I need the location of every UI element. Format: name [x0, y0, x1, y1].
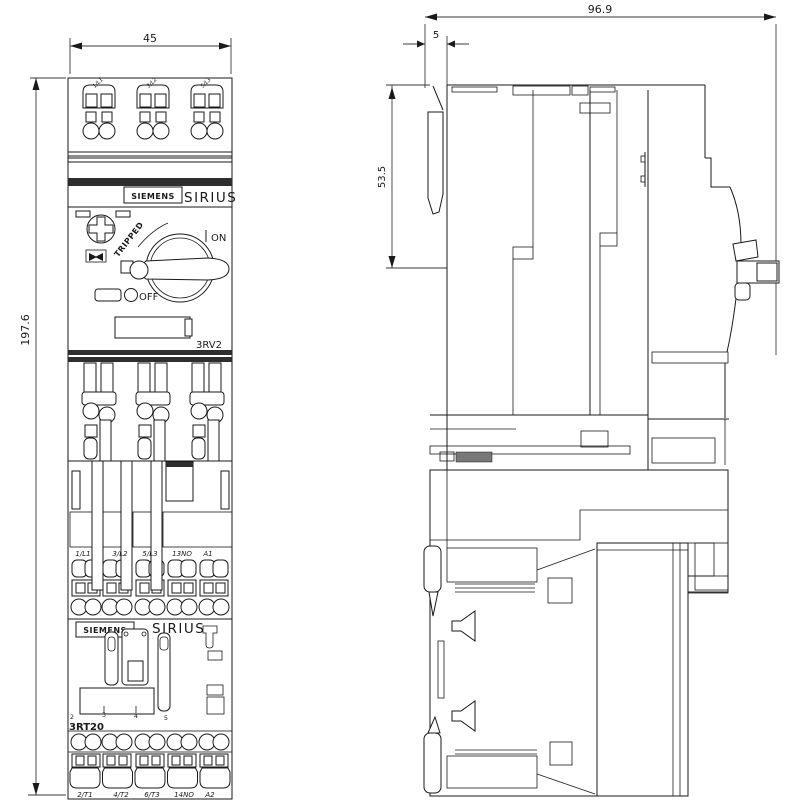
dimension-drawing-canvas: 45 197.6 1/L1 3/L2 5/L3 SIEMEN [0, 0, 800, 800]
input-terminal-label: 5/L3 [142, 550, 157, 558]
contactor-side [424, 470, 728, 796]
output-clamp [168, 768, 198, 788]
din-rail-claw-top [428, 86, 443, 214]
output-clamp [103, 768, 133, 788]
on-label: ON [211, 233, 226, 244]
front-top-terminal-block: 1/L1 3/L2 5/L3 [83, 77, 223, 139]
center-block [166, 462, 193, 501]
output-terminal-label: 14NO [174, 791, 194, 799]
scale-mark: 4 [134, 712, 138, 720]
output-clamp [70, 768, 100, 788]
input-terminal-label: 13NO [172, 550, 192, 558]
coil-body-side [597, 543, 688, 796]
contactor-label-window [80, 688, 154, 714]
breaker-label-window [115, 317, 190, 338]
input-terminal-label: 1/L1 [75, 550, 90, 558]
knob-lever-side [733, 240, 779, 300]
front-dim-height: 197.6 [19, 78, 66, 795]
input-clamp [168, 560, 196, 577]
breaker-brand: SIEMENS [131, 192, 175, 201]
input-screws [200, 580, 228, 596]
off-label: OFF [139, 292, 159, 303]
dimension-drawing: 45 197.6 1/L1 3/L2 5/L3 SIEMEN [0, 0, 800, 800]
output-terminal-label: 4/T2 [113, 791, 129, 799]
output-screws [103, 754, 131, 767]
breaker-model: 3RV2 [196, 340, 222, 351]
off-indicator [125, 289, 138, 302]
input-terminal-label: 3/L2 [112, 550, 128, 558]
front-view: 45 197.6 1/L1 3/L2 5/L3 SIEMEN [19, 32, 237, 799]
output-terminal-label: 2/T1 [77, 791, 93, 799]
dim-upper-depth-value: 53.5 [377, 166, 388, 188]
dim-rail-offset-value: 5 [433, 30, 439, 41]
output-screws [136, 754, 164, 767]
dim-height-value: 197.6 [19, 314, 32, 346]
din-rail-clip-bottom [424, 717, 441, 793]
output-terminal-label: A2 [204, 791, 215, 799]
adjustment-screw-icon[interactable] [87, 215, 115, 243]
input-clamp [200, 560, 228, 577]
side-dim-rail-offset: 5 [403, 30, 469, 85]
breaker-series: SIRIUS [184, 190, 237, 206]
output-screws [200, 754, 228, 767]
scale-mark: 5 [164, 714, 168, 722]
output-terminal-label: 6/T3 [144, 791, 160, 799]
breaker-side-lower [430, 352, 729, 465]
input-screws [168, 580, 196, 596]
side-view: 96.9 5 53.5 [377, 3, 779, 796]
output-clamp [200, 768, 230, 788]
side-dim-depth: 96.9 [425, 3, 776, 355]
output-screws [168, 754, 196, 767]
output-clamp [135, 768, 165, 788]
knob-handle[interactable] [140, 258, 229, 280]
scale-mark: 3 [102, 711, 106, 719]
input-terminal-label: A1 [202, 550, 212, 558]
scale-mark: 2 [70, 713, 74, 721]
dim-depth-value: 96.9 [588, 3, 613, 16]
contactor-brand: SIEMENS [83, 626, 127, 635]
front-dim-width: 45 [70, 32, 231, 74]
dim-width-value: 45 [143, 32, 157, 45]
front-device: 1/L1 3/L2 5/L3 SIEMENS SIRIUS [68, 77, 237, 799]
output-screws [72, 754, 100, 767]
